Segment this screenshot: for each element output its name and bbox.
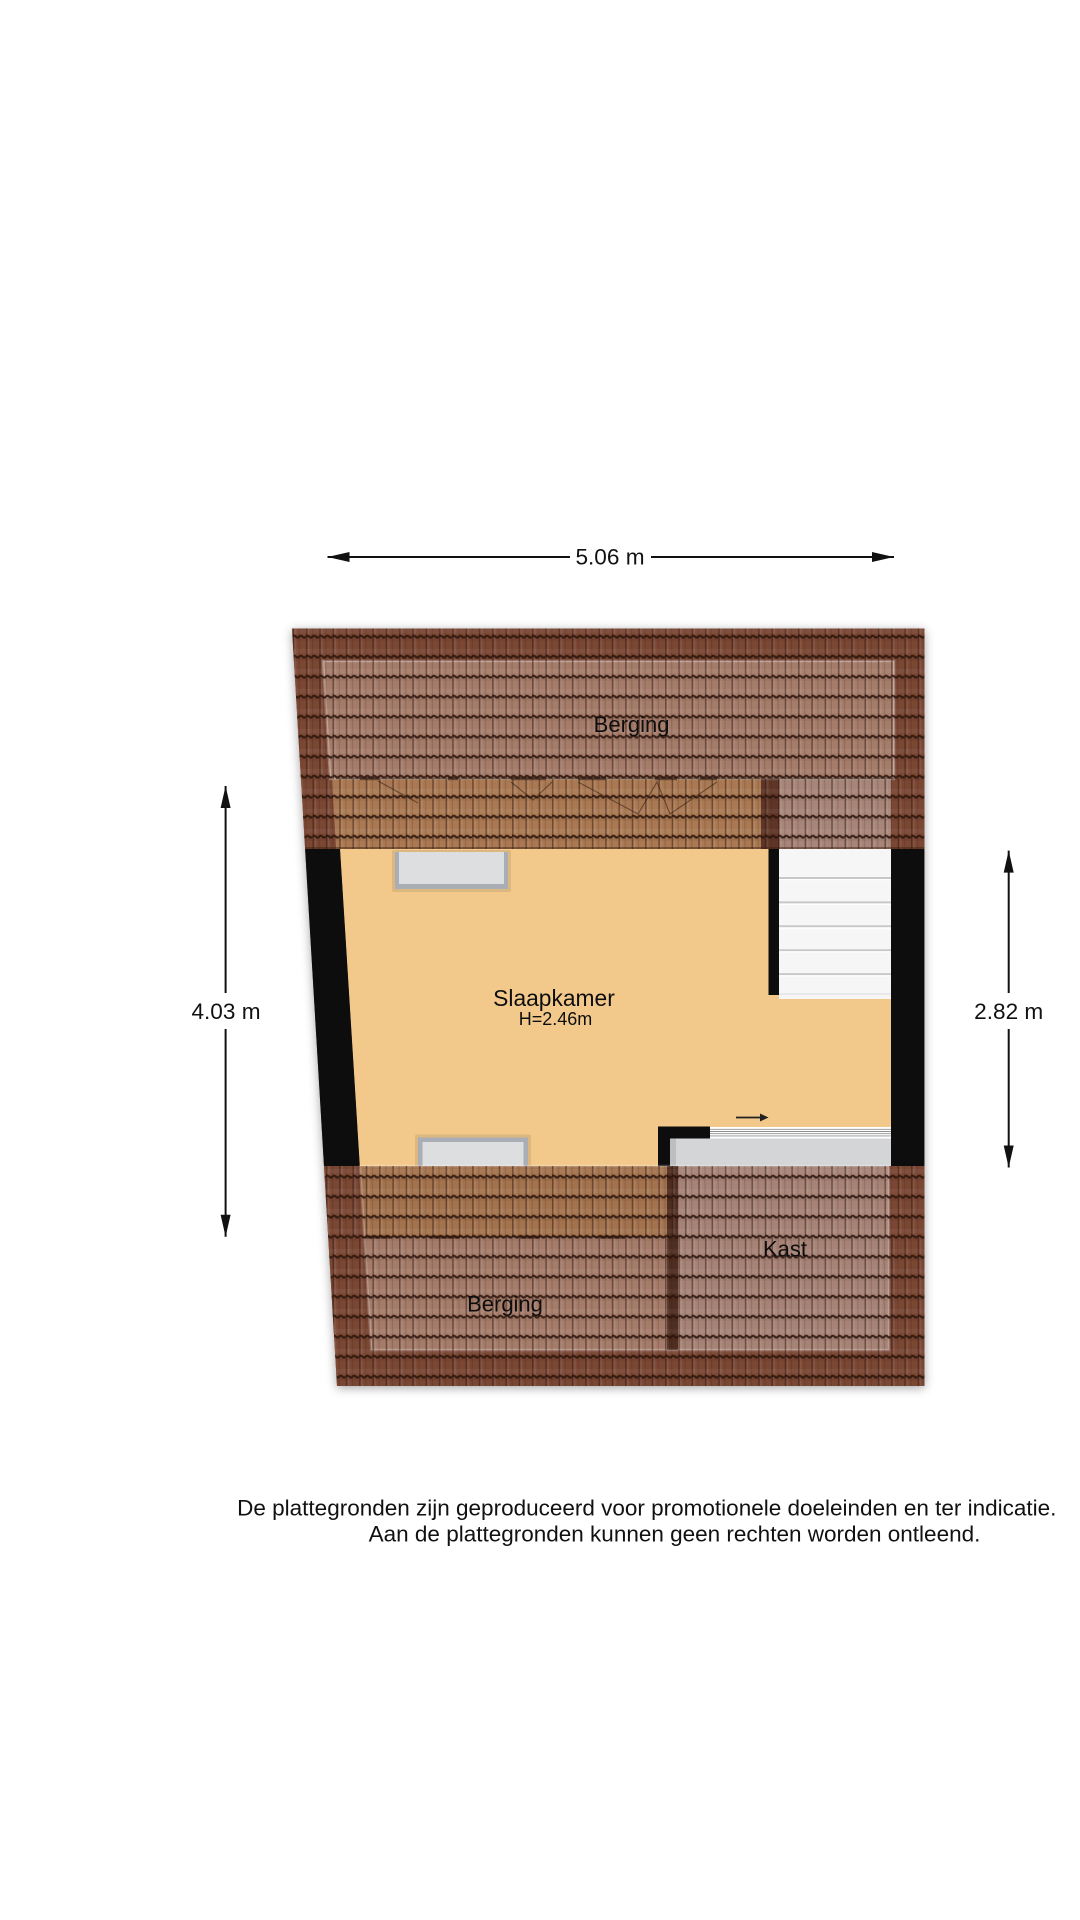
svg-text:Aan de plattegronden kunnen ge: Aan de plattegronden kunnen geen rechten… <box>369 1522 981 1547</box>
svg-text:H=2.46m: H=2.46m <box>519 1009 593 1029</box>
svg-text:De plattegronden zijn geproduc: De plattegronden zijn geproduceerd voor … <box>237 1496 1056 1521</box>
svg-text:4.03 m: 4.03 m <box>191 999 260 1024</box>
svg-text:2.82 m: 2.82 m <box>974 999 1043 1024</box>
svg-text:Kast: Kast <box>763 1237 807 1262</box>
svg-text:Berging: Berging <box>594 712 670 737</box>
svg-text:Berging: Berging <box>467 1292 543 1317</box>
svg-text:5.06 m: 5.06 m <box>575 545 644 570</box>
svg-text:Slaapkamer: Slaapkamer <box>493 985 615 1011</box>
